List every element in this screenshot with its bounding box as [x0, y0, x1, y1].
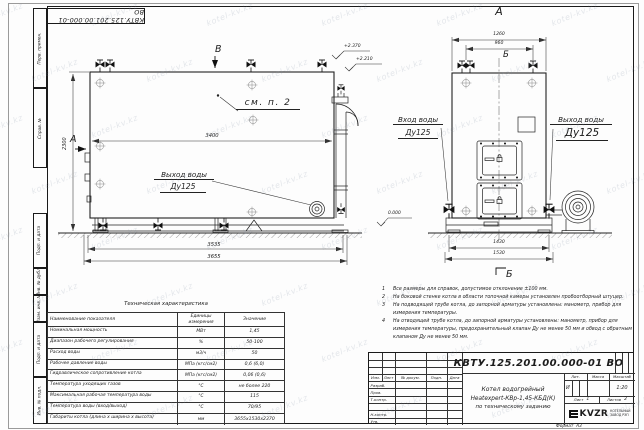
mark-v-label: В — [215, 45, 222, 55]
boiler-door-upper — [477, 141, 522, 180]
col-header-name: Наименование показателя — [48, 313, 178, 326]
col-list: Лист — [382, 374, 395, 381]
col-docnum: № докум. — [395, 374, 426, 381]
sig-prov: Пров. — [369, 390, 382, 395]
drawing-sheet: КВТУ.125.201.00.000-01 ВО Перв. примен. … — [0, 0, 644, 430]
table-row: Номинальная мощностьМВт1,45 — [48, 327, 284, 338]
table-row: Габариты котла (длина х ширина х высота)… — [48, 414, 284, 425]
dim-front-base: 1430 — [477, 241, 521, 246]
sig-utv: Утв. — [369, 419, 378, 424]
outlet-flange — [310, 202, 325, 217]
notes-list: 1Все размеры для справок, допустимое отк… — [382, 286, 632, 342]
table-row: Расход водым3/ч50 — [48, 349, 284, 360]
main-view-valves — [96, 60, 345, 230]
scale-value: 1:20 — [609, 380, 635, 396]
lit-label: Лит. — [564, 373, 587, 380]
ground-line-front — [428, 233, 612, 238]
table-row: Температура уходящих газов°Сне более 220 — [48, 381, 284, 392]
product-name: Котел водогрейный Heatexpert-КВр-1,45-КБ… — [462, 373, 564, 425]
front-view-details — [446, 58, 594, 240]
table-row: Диапазон рабочего регулирования%50-100 — [48, 338, 284, 349]
kvzr-logo-text: KVZR — [580, 409, 609, 419]
dim-front-valve-spacing: 960 — [477, 42, 521, 47]
tech-table-title: Техническая характеристика — [47, 301, 285, 312]
title-block: Изм. Лист № докум. Подп. Дата Разраб. Пр… — [368, 352, 634, 424]
sheets-cell: Листов2 — [599, 396, 635, 403]
kvzr-logo-caption: КОТЕЛЬНЫЙ ЗАВОД РЭП — [610, 410, 630, 417]
note-item: 4На отводящей трубе котла, до запорной а… — [382, 318, 632, 342]
leader-lines — [212, 94, 553, 205]
table-row: Рабочее давление водыМПа (кгс/см2)0,6 (6… — [48, 360, 284, 371]
elevation-boiler-top: +2.210 — [356, 58, 373, 63]
main-view — [90, 72, 334, 218]
sig-tkontr: Т.контр. — [369, 397, 387, 402]
dim-overall: 3655 — [192, 255, 236, 260]
mass-label: Масса — [587, 373, 609, 380]
col-header-units: Единицы измерения — [178, 313, 225, 326]
sheet-cell: Лист1 — [564, 396, 599, 403]
scale-label: Масштаб — [609, 373, 635, 380]
main-view-lugs — [95, 78, 259, 218]
col-izm: Изм. — [369, 374, 382, 381]
inlet-label: Вход воды — [393, 116, 443, 125]
front-outlet-dn: Ду125 — [556, 128, 608, 141]
table-row: Гидравлическое сопротивление котлаМПа (к… — [48, 370, 284, 381]
note-item: 3На подводящей трубе котла, до запорной … — [382, 302, 632, 318]
col-header-value: Значение — [225, 313, 284, 326]
note-item: 1Все размеры для справок, допустимое отк… — [382, 286, 632, 294]
col-data: Дата — [447, 374, 462, 381]
view-marks — [75, 56, 506, 275]
main-view-details — [85, 93, 358, 233]
tech-table: Техническая характеристика Наименование … — [47, 301, 285, 424]
front-outlet-label: Выход воды — [550, 116, 612, 125]
dim-front-overall-width: 1260 — [477, 33, 521, 38]
kvzr-logo-icon — [569, 410, 578, 418]
note-item: 2На боковой стенке котла в области топоч… — [382, 294, 632, 302]
sig-nkontr: Н.контр. — [369, 412, 388, 417]
dim-base: 3535 — [192, 243, 236, 248]
kvzr-logo: KVZR КОТЕЛЬНЫЙ ЗАВОД РЭП — [564, 403, 635, 425]
table-row: Температура воды (вход/выход)°С70/95 — [48, 403, 284, 414]
section-mark-b-bottom: Б — [506, 270, 513, 280]
col-podp: Подп. — [426, 374, 447, 381]
dim-inner-width: 3400 — [190, 134, 234, 139]
title-block-doc-number: КВТУ.125.201.00.000-01 ВО — [462, 353, 615, 373]
elevation-zero: 0.000 — [388, 212, 401, 217]
callout-see-item-2: см. п. 2 — [236, 99, 300, 110]
boiler-door-lower — [477, 183, 522, 219]
sig-razrab: Разраб. — [369, 383, 385, 388]
main-outlet-label: Выход воды — [154, 171, 214, 180]
lit-value: И — [564, 380, 572, 396]
inlet-dn: Ду125 — [398, 129, 438, 139]
front-view-title: А — [488, 6, 510, 17]
tech-table-header: Наименование показателя Единицы измерени… — [48, 313, 284, 327]
main-outlet-dn: Ду125 — [160, 183, 206, 193]
mass-value — [587, 380, 609, 396]
ground-line-main — [58, 233, 362, 238]
table-row: Максимальная рабочая температура воды°С1… — [48, 392, 284, 403]
section-mark-b-top: Б — [503, 51, 509, 60]
view-arrow-a-label: А — [70, 135, 77, 145]
elevation-stack-top: +2.370 — [344, 45, 361, 50]
dim-height: 2300 — [63, 137, 68, 150]
dim-front-overall-base: 1530 — [477, 252, 521, 257]
